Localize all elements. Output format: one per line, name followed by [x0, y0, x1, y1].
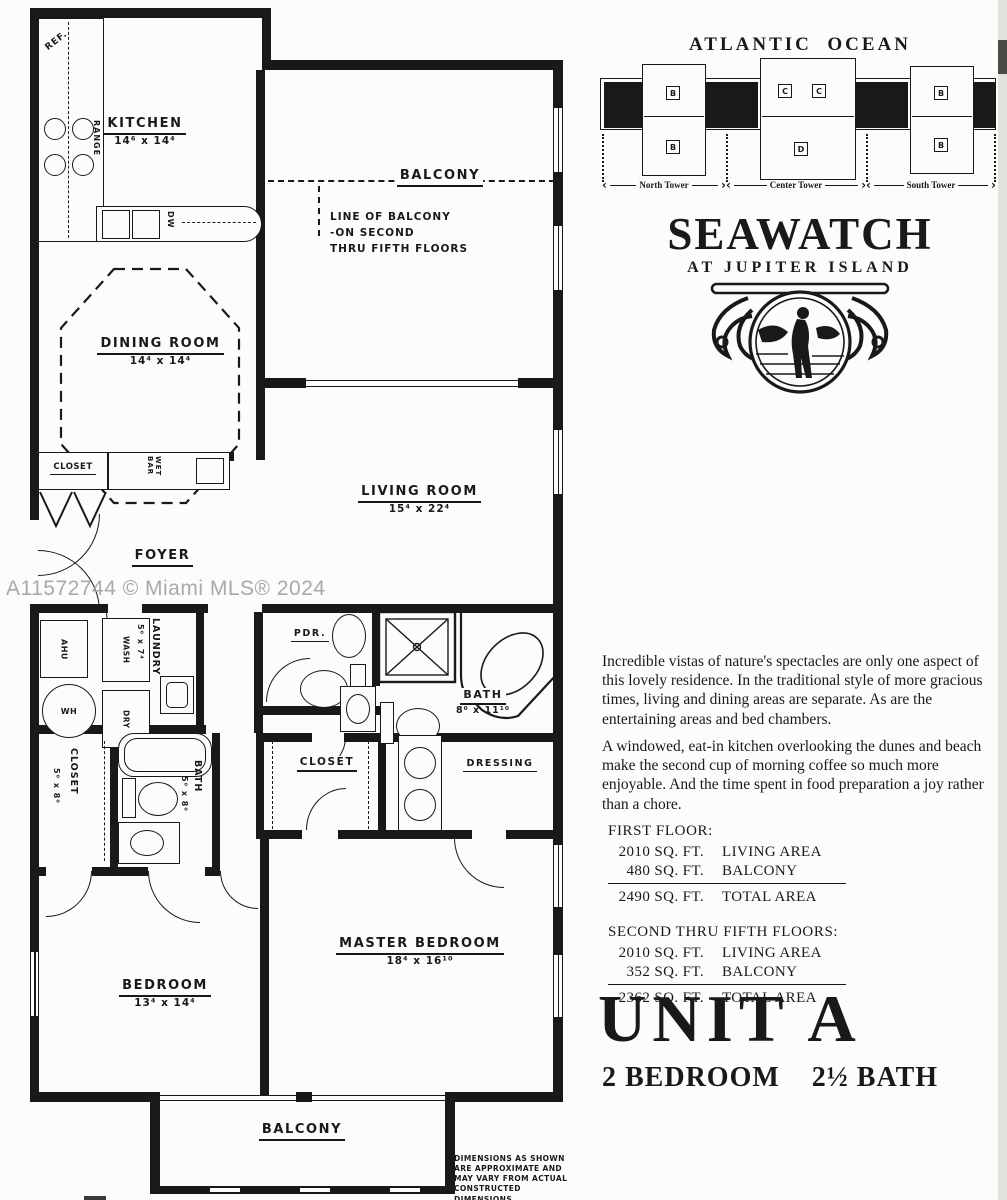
- laundry-sink-basin: [166, 682, 188, 708]
- bedroom-label: BEDROOM 13⁴ x 14⁴: [95, 978, 235, 1010]
- site-plan-diagram: B B C C D B B ‹ North Tower › ‹ Center T…: [598, 56, 1002, 206]
- wall: [260, 839, 269, 1095]
- area-label: BALCONY: [722, 862, 797, 881]
- wall: [553, 60, 563, 1102]
- wet-bar-sink-icon: [196, 458, 224, 484]
- span-line: [874, 185, 904, 186]
- powder-room-name: PDR.: [291, 628, 329, 642]
- wall: [338, 830, 472, 839]
- area-label: LIVING AREA: [722, 843, 822, 862]
- wall: [30, 867, 46, 876]
- range-burner-icon: [72, 154, 94, 176]
- area-row: 2010 SQ. FT. LIVING AREA: [608, 944, 846, 963]
- south-tower-span: ‹ South Tower ›: [866, 180, 996, 190]
- extent-dotted-line: [602, 134, 604, 182]
- description-block: Incredible vistas of nature's spectacles…: [602, 652, 1002, 822]
- wall: [506, 830, 563, 839]
- wet-bar-label: WET BAR: [146, 456, 162, 488]
- area-total-row: 2490 SQ. FT. TOTAL AREA: [608, 888, 846, 907]
- rail-slot: [210, 1188, 240, 1192]
- wall: [30, 1092, 152, 1102]
- description-paragraph-2: A windowed, eat-in kitchen overlooking t…: [602, 737, 1002, 814]
- wall: [262, 60, 563, 70]
- pedestal-sink-icon: [332, 614, 366, 658]
- wall: [196, 612, 204, 733]
- center-tower-footprint: [760, 58, 856, 180]
- master-bedroom-dim: 18⁴ x 16¹⁰: [325, 955, 515, 968]
- building-block: [974, 82, 996, 128]
- window: [30, 952, 39, 1016]
- extent-dotted-line: [726, 134, 728, 182]
- unit-letter: B: [666, 86, 680, 100]
- kitchen-name: KITCHEN: [104, 116, 185, 135]
- north-tower-footprint: [642, 64, 706, 176]
- hall-closet-label: CLOSET: [68, 748, 79, 860]
- balcony-lower-label: BALCONY: [252, 1122, 352, 1141]
- counter-dash: [182, 222, 256, 223]
- balcony-upper-label: BALCONY: [392, 168, 488, 187]
- foyer-closet-label: CLOSET: [40, 462, 106, 475]
- area-row: 352 SQ. FT. BALCONY: [608, 963, 846, 982]
- center-tower-label: Center Tower: [770, 180, 823, 190]
- ahu-unit: AHU: [40, 620, 88, 678]
- balcony-post: [150, 1092, 160, 1194]
- scan-artifact: [84, 1196, 106, 1200]
- sink-basin-icon: [130, 830, 164, 856]
- window: [553, 226, 563, 290]
- range-burner-icon: [44, 118, 66, 140]
- area-sqft: 2490 SQ. FT.: [608, 888, 704, 907]
- shower-icon: [377, 610, 457, 684]
- first-floor-title: FIRST FLOOR:: [608, 822, 846, 840]
- hall-bath-label: BATH: [192, 760, 203, 850]
- brand-name: SEAWATCH: [640, 212, 960, 257]
- area-sqft: 2010 SQ. FT.: [608, 843, 704, 862]
- span-line: [692, 185, 718, 186]
- area-label: TOTAL AREA: [722, 888, 817, 907]
- window: [553, 108, 563, 172]
- span-line: [734, 185, 767, 186]
- span-line: [958, 185, 988, 186]
- area-label: BALCONY: [722, 963, 797, 982]
- brand-block: SEAWATCH AT JUPITER ISLAND: [640, 212, 960, 277]
- wall: [205, 867, 220, 876]
- wall: [30, 8, 270, 18]
- unit-letter: B: [934, 138, 948, 152]
- master-closet-name: CLOSET: [297, 756, 357, 772]
- master-bath-dim: 8⁰ x 11¹⁰: [428, 705, 538, 717]
- north-tower-span: ‹ North Tower ›: [602, 180, 726, 190]
- rail-slot: [300, 1188, 330, 1192]
- dishwasher-icon: [102, 210, 130, 239]
- building-block: [856, 82, 908, 128]
- dining-name: DINING ROOM: [97, 336, 223, 355]
- bedroom-dim: 13⁴ x 14⁴: [95, 997, 235, 1010]
- area-sqft: 480 SQ. FT.: [608, 862, 704, 881]
- seawatch-emblem-icon: [700, 282, 900, 394]
- span-line: [610, 185, 636, 186]
- toilet-tank-icon: [380, 702, 394, 744]
- bedroom-door-arc: [220, 871, 258, 909]
- closet-door-arc: [46, 871, 92, 917]
- bath-door-arc: [148, 871, 200, 923]
- site-plan-title: ATLANTIC OCEAN: [598, 34, 1002, 56]
- closet-shelf-dash: [368, 741, 369, 829]
- area-label: LIVING AREA: [722, 944, 822, 963]
- dishwasher-label: DW: [166, 211, 175, 241]
- description-paragraph-1: Incredible vistas of nature's spectacles…: [602, 652, 1002, 729]
- kitchen-dim: 14⁶ x 14⁴: [85, 135, 205, 148]
- master-door-arc: [454, 838, 504, 888]
- bedroom-name: BEDROOM: [119, 978, 211, 997]
- tower-divider: [912, 116, 972, 117]
- unit-letter: B: [666, 140, 680, 154]
- wall: [256, 70, 265, 460]
- kitchen-label: KITCHEN 14⁶ x 14⁴: [85, 116, 205, 148]
- wall: [212, 733, 220, 867]
- foyer-label: FOYER: [120, 548, 205, 567]
- area-tables: FIRST FLOOR: 2010 SQ. FT. LIVING AREA 48…: [608, 822, 846, 1008]
- total-rule: [608, 883, 846, 884]
- dressing-name: DRESSING: [463, 758, 536, 772]
- tower-divider: [644, 116, 704, 117]
- area-row: 480 SQ. FT. BALCONY: [608, 862, 846, 881]
- slider-track: [160, 1100, 445, 1101]
- mls-watermark: A11572744 © Miami MLS® 2024: [6, 577, 326, 601]
- dining-label: DINING ROOM 14⁴ x 14⁴: [88, 336, 233, 368]
- tower-divider: [762, 116, 854, 117]
- wall: [518, 378, 563, 388]
- balcony-upper-name: BALCONY: [397, 168, 483, 187]
- living-dim: 15⁴ x 22⁴: [352, 503, 487, 516]
- extent-dotted-line: [866, 134, 868, 182]
- rail-slot: [390, 1188, 420, 1192]
- unit-letter: C: [778, 84, 792, 98]
- center-tower-span: ‹ Center Tower ›: [726, 180, 866, 190]
- window: [553, 430, 563, 494]
- extent-dotted-line: [994, 134, 996, 182]
- foyer-name: FOYER: [132, 548, 194, 567]
- disclaimer-text: DIMENSIONS AS SHOWN ARE APPROXIMATE AND …: [454, 1154, 579, 1200]
- sink-icon: [132, 210, 160, 239]
- closet-door-arc: [306, 788, 346, 830]
- living-label: LIVING ROOM 15⁴ x 22⁴: [352, 484, 487, 516]
- area-sqft: 2010 SQ. FT.: [608, 944, 704, 963]
- unit-title: UNIT A: [598, 986, 862, 1053]
- unit-letter: C: [812, 84, 826, 98]
- wall: [378, 741, 386, 837]
- wall: [254, 612, 263, 733]
- south-tower-label: South Tower: [907, 180, 956, 190]
- master-bedroom-label: MASTER BEDROOM 18⁴ x 16¹⁰: [325, 936, 515, 968]
- balcony-note: LINE OF BALCONY -ON SECOND THRU FIFTH FL…: [330, 210, 500, 257]
- wall: [258, 830, 302, 839]
- north-tower-label: North Tower: [639, 180, 688, 190]
- upper-floors-title: SECOND THRU FIFTH FLOORS:: [608, 923, 846, 941]
- sink-basin-icon: [404, 789, 436, 821]
- master-bedroom-name: MASTER BEDROOM: [336, 936, 504, 955]
- powder-room-label: PDR.: [284, 628, 336, 642]
- building-block: [604, 82, 642, 128]
- area-sqft: 352 SQ. FT.: [608, 963, 704, 982]
- master-closet-label: CLOSET: [282, 756, 372, 772]
- wall: [110, 733, 118, 867]
- scan-edge: [998, 0, 1007, 1200]
- balcony-line-connector: [318, 186, 320, 236]
- sink-basin-icon: [346, 694, 370, 724]
- sink-basin-icon: [404, 747, 436, 779]
- closet-shelf-dash: [272, 741, 273, 829]
- scan-artifact: [998, 40, 1007, 74]
- slider-track: [160, 1095, 445, 1096]
- unit-baths: 2½ BATH: [812, 1062, 938, 1094]
- toilet-tank-icon: [122, 778, 136, 818]
- wall: [258, 733, 312, 742]
- wall: [30, 610, 39, 1102]
- toilet-icon: [138, 782, 178, 816]
- south-tower-footprint: [910, 66, 974, 174]
- wall: [344, 733, 563, 742]
- laundry-label: LAUNDRY: [150, 618, 161, 676]
- wall: [453, 1092, 563, 1102]
- brand-tagline: AT JUPITER ISLAND: [640, 259, 960, 277]
- foyer-closet-name: CLOSET: [50, 462, 95, 475]
- bifold-doors-icon: [38, 490, 108, 530]
- unit-subtitle: 2 BEDROOM 2½ BATH: [602, 1062, 938, 1094]
- wall: [92, 867, 148, 876]
- laundry-dim: 5⁰ x 7⁴: [136, 624, 145, 672]
- window: [553, 845, 563, 907]
- dressing-label: DRESSING: [444, 758, 556, 772]
- dining-dim: 14⁴ x 14⁴: [88, 355, 233, 368]
- area-row: 2010 SQ. FT. LIVING AREA: [608, 843, 846, 862]
- hall-bath-dim: 5⁰ x 8⁰: [180, 776, 189, 840]
- balcony-lower-name: BALCONY: [259, 1122, 345, 1141]
- master-bath-name: BATH: [460, 688, 505, 705]
- building-block: [706, 82, 758, 128]
- window: [553, 955, 563, 1017]
- floorplan-page: REF. RANGE DW KITCHEN 14⁶ x 14⁴ BALCONY …: [0, 0, 1007, 1200]
- first-floor-block: FIRST FLOOR: 2010 SQ. FT. LIVING AREA 48…: [608, 822, 846, 906]
- slider-track: [306, 386, 518, 387]
- counter-dash: [68, 22, 69, 238]
- wall: [256, 733, 264, 839]
- range-burner-icon: [44, 154, 66, 176]
- hall-closet-dim: 5⁰ x 8⁰: [52, 768, 61, 838]
- unit-bedrooms: 2 BEDROOM: [602, 1062, 780, 1094]
- master-bath-label: BATH 8⁰ x 11¹⁰: [428, 688, 538, 717]
- closet-shelf-dash: [104, 741, 105, 861]
- water-heater-icon: WH: [42, 684, 96, 738]
- unit-letter: B: [934, 86, 948, 100]
- wall: [262, 378, 306, 388]
- span-line: [825, 185, 858, 186]
- unit-letter: D: [794, 142, 808, 156]
- living-name: LIVING ROOM: [358, 484, 481, 503]
- slider-track: [306, 380, 518, 381]
